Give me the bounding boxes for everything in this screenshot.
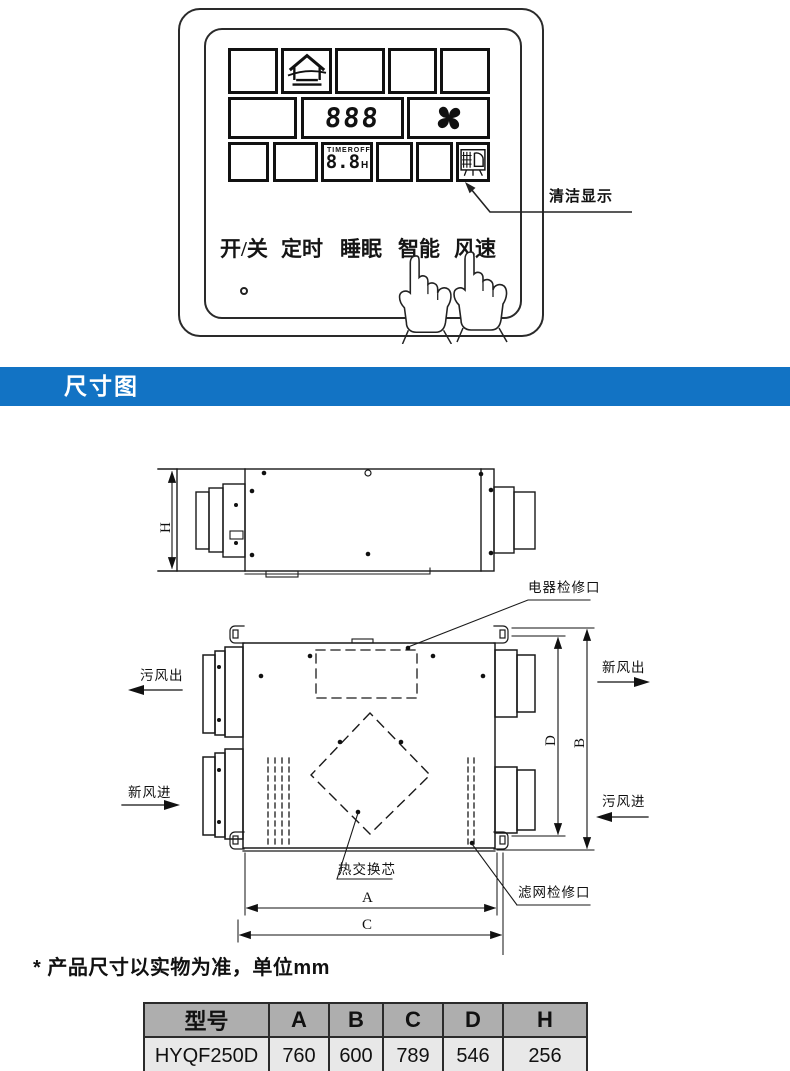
cell-d: 546 <box>443 1037 503 1071</box>
plan-view-screws <box>217 646 485 846</box>
cell-b: 600 <box>329 1037 383 1071</box>
manual-page: 888 TIMER OFF 8.8H <box>0 0 790 1071</box>
lcd-cell <box>335 48 385 94</box>
house-vent-icon <box>285 52 329 90</box>
lcd-cell <box>440 48 490 94</box>
cell-h: 256 <box>503 1037 587 1071</box>
filter-access-label: 滤网检修口 <box>518 885 591 900</box>
col-h: H <box>503 1003 587 1037</box>
lcd-cell-digits: 888 <box>301 97 404 139</box>
dim-a-label: A <box>362 890 373 906</box>
airflow-annotations: 污风出 新风进 新风出 污风进 <box>122 660 650 822</box>
filter-slots <box>268 758 474 845</box>
indicator-dot <box>240 287 248 295</box>
section-banner-title: 尺寸图 <box>64 367 139 406</box>
dimension-drawing: H 电器检修口 <box>0 430 790 955</box>
heat-core-label: 热交换芯 <box>338 861 396 877</box>
col-a: A <box>269 1003 329 1037</box>
clean-filter-icon <box>460 147 486 177</box>
section-banner: 尺寸图 <box>0 367 790 406</box>
cell-a: 760 <box>269 1037 329 1071</box>
spec-table-header-row: 型号 A B C D H <box>144 1003 587 1037</box>
fresh-air-out-label: 新风出 <box>602 660 646 675</box>
dim-H: H <box>158 472 174 568</box>
plan-right-ducts <box>495 650 535 833</box>
lcd-cell <box>273 142 318 182</box>
foul-air-out-label: 污风出 <box>140 668 184 683</box>
spec-table-data-row: HYQF250D 760 600 789 546 256 <box>144 1037 587 1071</box>
side-view <box>158 469 535 577</box>
plan-left-ducts <box>203 647 243 839</box>
heat-core-diamond <box>311 713 430 834</box>
cell-c: 789 <box>383 1037 443 1071</box>
side-view-screws <box>234 471 493 558</box>
lcd-cell <box>388 48 437 94</box>
fresh-air-in-label: 新风进 <box>128 785 172 800</box>
lcd-cell-clean <box>456 142 490 182</box>
button-timer: 定时 <box>281 233 323 263</box>
pointing-hand-icon <box>447 248 511 344</box>
timer-digits: 8.8 <box>326 151 360 173</box>
dim-d-label: D <box>543 735 559 746</box>
cell-model: HYQF250D <box>144 1037 269 1071</box>
dimension-note: * 产品尺寸以实物为准，单位mm <box>33 951 330 980</box>
lcd-cell <box>228 142 269 182</box>
col-model: 型号 <box>144 1003 269 1037</box>
side-view-hole <box>365 470 371 476</box>
lcd-main-digits: 888 <box>324 103 381 134</box>
lcd-cell-timer: TIMER OFF 8.8H <box>321 142 373 182</box>
heat-core-annotation: 热交换芯 <box>337 813 396 879</box>
fan-icon <box>433 102 465 134</box>
button-power: 开/关 <box>220 233 268 263</box>
dim-b-label: B <box>572 738 588 748</box>
lcd-cell <box>416 142 453 182</box>
lcd-cell <box>228 48 278 94</box>
lcd-cell <box>228 97 297 139</box>
electric-access-label: 电器检修口 <box>528 580 601 595</box>
filter-access-annotation: 滤网检修口 <box>472 844 591 905</box>
timer-unit: H <box>361 160 368 171</box>
lcd-cell-house <box>281 48 332 94</box>
col-c: C <box>383 1003 443 1037</box>
col-d: D <box>443 1003 503 1037</box>
foul-air-in-label: 污风进 <box>602 794 646 809</box>
electric-access-annotation: 电器检修口 <box>408 580 601 647</box>
spec-table: 型号 A B C D H HYQF250D 760 600 789 546 25… <box>143 1002 588 1071</box>
plan-view <box>203 626 535 851</box>
dim-D: D <box>512 636 565 836</box>
clean-annotation-label: 清洁显示 <box>549 185 613 206</box>
button-sleep: 睡眠 <box>340 233 382 263</box>
dim-h-label: H <box>158 522 174 533</box>
col-b: B <box>329 1003 383 1037</box>
dim-c-label: C <box>362 917 372 933</box>
lcd-cell <box>376 142 413 182</box>
lcd-cell-fan <box>407 97 490 139</box>
